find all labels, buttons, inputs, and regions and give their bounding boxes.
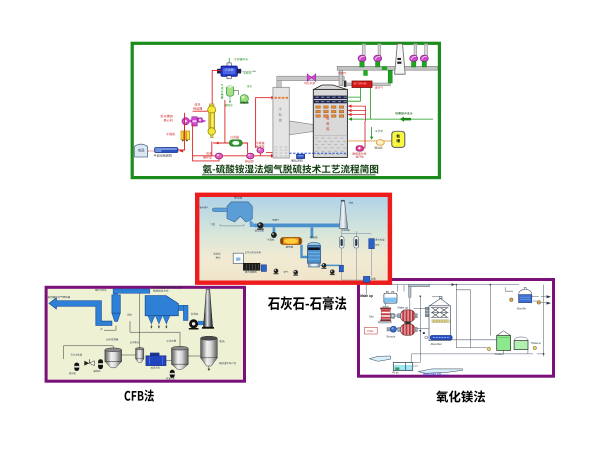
svg-text:Oxidizer: Oxidizer [495, 353, 504, 356]
svg-text:Pit de: Pit de [392, 372, 399, 375]
svg-text:Prills: Prills [367, 329, 374, 333]
svg-text:Recircle: Recircle [387, 335, 396, 338]
svg-text:Stm: Stm [369, 315, 375, 319]
svg-text:Mod Wtr: Mod Wtr [517, 308, 526, 311]
svg-text:Make up: Make up [360, 294, 373, 298]
svg-text:Make up: Make up [398, 305, 409, 309]
svg-text:Absorber: Absorber [431, 342, 442, 346]
svg-text:Thickener: Thickener [531, 342, 542, 345]
